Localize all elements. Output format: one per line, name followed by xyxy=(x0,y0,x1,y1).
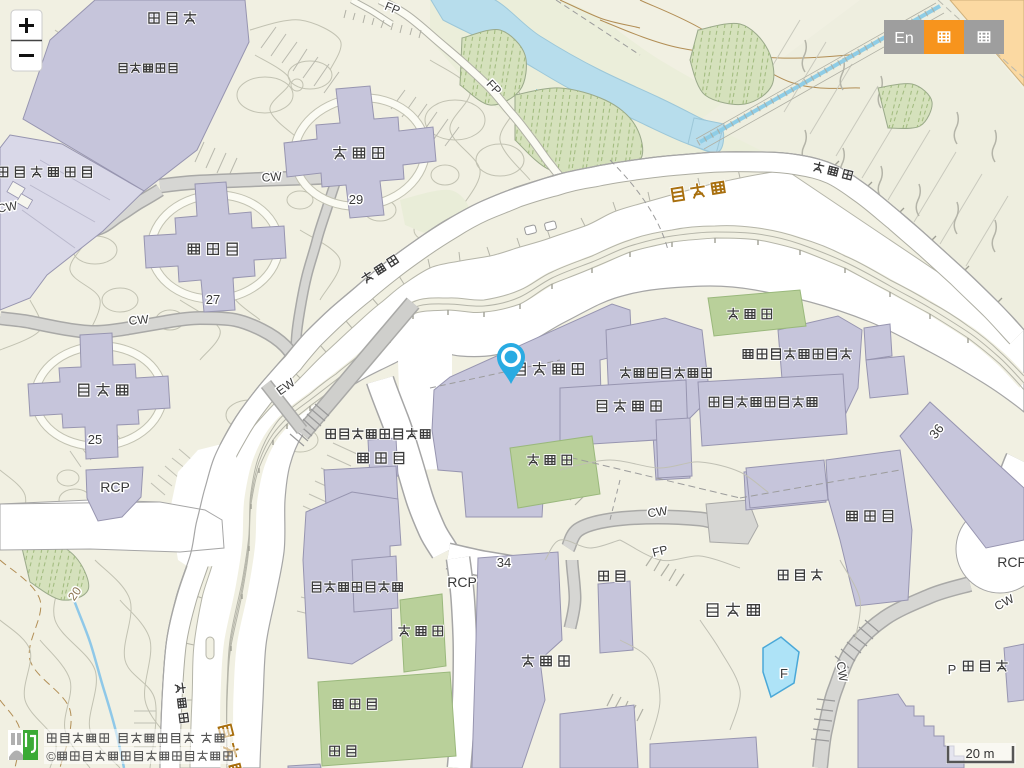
svg-text:27: 27 xyxy=(206,292,220,307)
svg-text:34: 34 xyxy=(497,555,511,570)
svg-text:©: © xyxy=(46,749,56,764)
svg-text:25: 25 xyxy=(88,432,102,447)
svg-text:RCP: RCP xyxy=(447,574,477,590)
svg-text:20 m: 20 m xyxy=(966,746,995,761)
svg-text:CW: CW xyxy=(834,661,851,683)
svg-text:F: F xyxy=(780,666,788,681)
svg-text:CW: CW xyxy=(128,312,150,328)
svg-text:29: 29 xyxy=(349,192,363,207)
svg-text:En: En xyxy=(894,30,914,47)
svg-text:CW: CW xyxy=(261,169,283,184)
svg-text:P: P xyxy=(948,662,957,677)
svg-text:RCP: RCP xyxy=(997,554,1024,570)
svg-text:RCP: RCP xyxy=(100,479,130,495)
svg-text:CW: CW xyxy=(647,504,669,521)
